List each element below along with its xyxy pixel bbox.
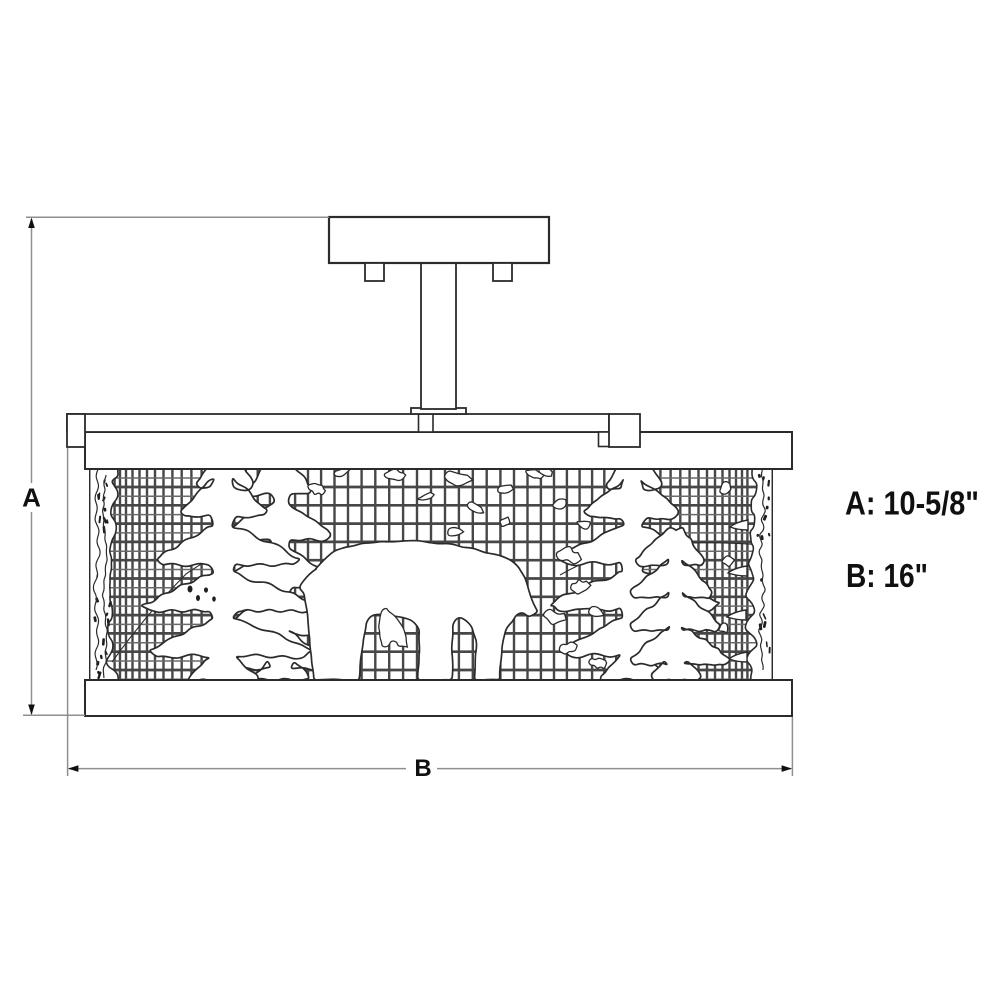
svg-text:A: A [22,483,41,513]
svg-text:B: B [414,755,431,782]
svg-text:B: 16": B: 16" [846,557,928,594]
svg-text:A: 10-5/8": A: 10-5/8" [845,485,979,522]
